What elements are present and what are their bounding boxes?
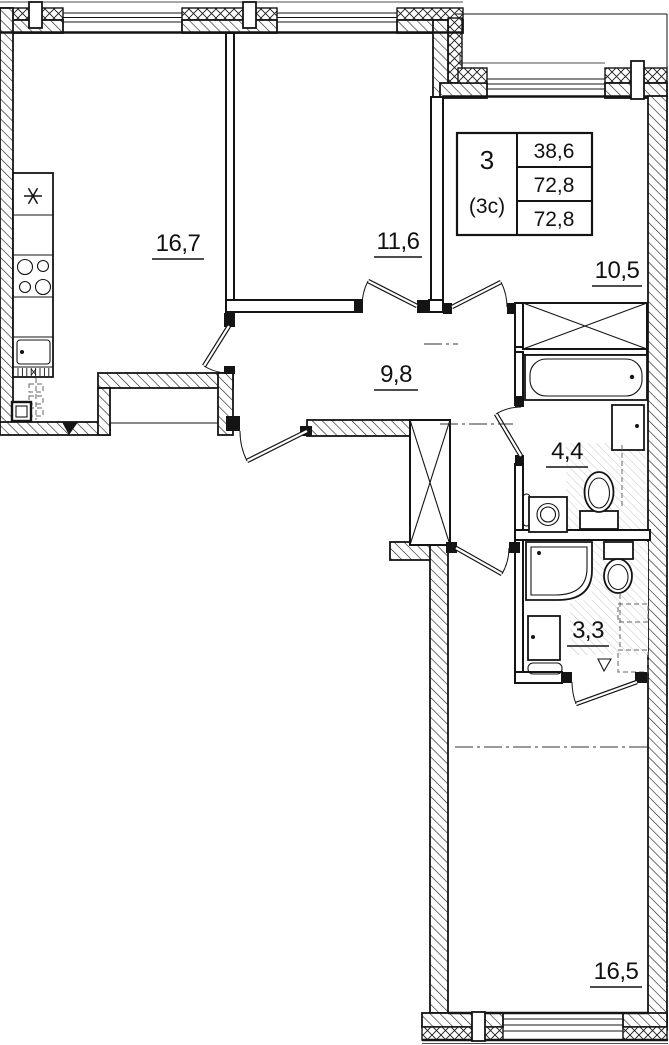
kitchen-fixtures	[12, 173, 53, 421]
washing-machine	[529, 497, 567, 532]
bathroom-door	[496, 396, 524, 466]
bathtub	[525, 355, 647, 400]
window-post	[631, 61, 644, 99]
kitchen-window	[63, 8, 182, 28]
bedroom-3-window	[503, 1013, 623, 1040]
entrance-door	[226, 416, 312, 461]
kitchen-counter	[13, 173, 53, 377]
unit-info-table: 3 (3c) 38,6 72,8 72,8	[457, 133, 592, 235]
bedroom-1-door	[354, 281, 429, 313]
floor-plan-svg: 3 (3c) 38,6 72,8 72,8 16,7 11,6 10,5 9,8…	[0, 0, 669, 1045]
room-label-bedroom-1: 11,6	[377, 228, 420, 255]
living-room-door	[204, 313, 235, 374]
room-label-kitchen: 16,7	[156, 230, 201, 257]
duct-shaft	[12, 402, 31, 421]
corridor-door	[446, 542, 520, 574]
shower-room-fixtures	[526, 542, 648, 674]
bathroom-sink	[612, 405, 644, 450]
shower-room-door	[562, 672, 647, 704]
window-post	[243, 2, 256, 28]
room-label-hallway: 9,8	[380, 361, 412, 388]
bedroom-2-door	[443, 282, 516, 314]
window-post	[472, 1012, 485, 1041]
stamp-rooms-count: 3	[480, 145, 494, 175]
room-label-shower-room: 3,3	[572, 617, 604, 644]
shower-room-sink	[528, 616, 560, 660]
hall-closet	[410, 420, 450, 545]
wall-kitchen-bedroom1	[226, 33, 234, 300]
wall-bedroom1-hall	[226, 300, 362, 312]
room-label-bathroom: 4,4	[551, 438, 583, 465]
floor-drain-icon	[598, 659, 611, 671]
shower-tray	[526, 542, 592, 600]
floor-plan: 3 (3c) 38,6 72,8 72,8 16,7 11,6 10,5 9,8…	[0, 0, 669, 1045]
stamp-area: 72,8	[534, 174, 575, 197]
bedroom-1-window	[277, 8, 397, 28]
wall-bedroom1-bedroom2	[431, 97, 443, 312]
bedroom-2-window	[487, 68, 605, 96]
room-label-bedroom-3: 16,5	[594, 958, 639, 985]
stamp-total-area: 72,8	[534, 208, 575, 231]
wall-shower-left	[515, 540, 523, 672]
wall-hall-closet	[515, 303, 523, 352]
bathroom-fixtures	[523, 355, 647, 532]
stamp-layout-type: (3c)	[469, 195, 505, 218]
window-post	[29, 2, 42, 28]
toilet-shower-room	[604, 542, 633, 593]
bedroom-2-closet	[523, 303, 647, 349]
stamp-living-area: 38,6	[534, 140, 575, 163]
room-label-bedroom-2: 10,5	[595, 257, 640, 284]
